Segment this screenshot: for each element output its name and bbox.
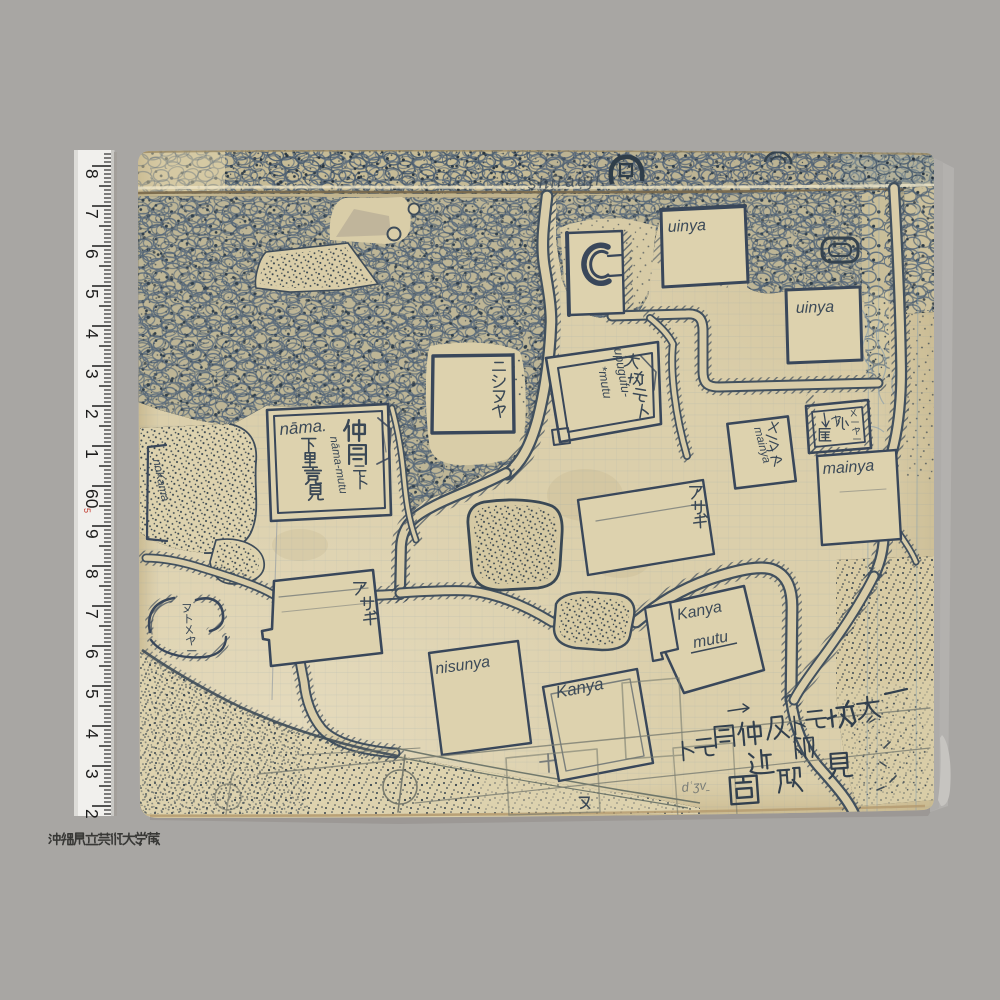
svg-text:5: 5 [82,508,92,513]
svg-text:8: 8 [82,569,102,579]
svg-text:3: 3 [82,369,102,379]
svg-text:5: 5 [82,289,102,299]
svg-text:2: 2 [82,809,102,819]
svg-text:dʿʒvˍ: dʿʒvˍ [681,777,711,795]
svg-text:3: 3 [82,769,102,779]
svg-text:4: 4 [82,329,102,339]
svg-text:4: 4 [82,729,102,739]
svg-text:6: 6 [82,649,102,659]
svg-text:5: 5 [82,689,102,699]
svg-text:uinya: uinya [796,299,835,317]
svg-text:mainya: mainya [822,457,875,478]
svg-text:6: 6 [82,249,102,259]
svg-text:1: 1 [82,449,102,459]
svg-text:7: 7 [82,209,102,219]
svg-text:9: 9 [82,529,102,539]
svg-text:8: 8 [82,169,102,179]
svg-text:2: 2 [82,409,102,419]
svg-text:shiraụji: shiraụji [527,170,602,193]
svg-text:7: 7 [82,609,102,619]
svg-text:60: 60 [82,489,102,509]
svg-text:uinya: uinya [667,217,706,236]
